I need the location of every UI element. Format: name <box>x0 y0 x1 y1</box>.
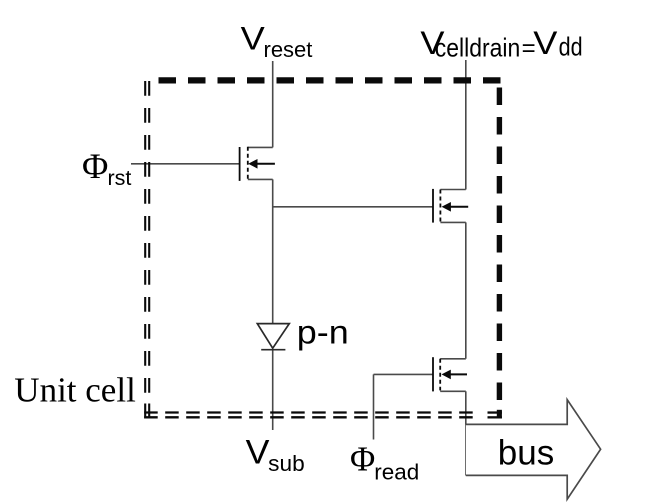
svg-text:sub: sub <box>268 451 305 476</box>
svg-text:celldrain: celldrain <box>435 33 521 63</box>
svg-text:bus: bus <box>498 434 554 473</box>
svg-text:V: V <box>533 26 557 62</box>
svg-text:rst: rst <box>108 166 132 190</box>
svg-text:Φ: Φ <box>82 146 108 186</box>
svg-text:Φ: Φ <box>350 441 375 479</box>
svg-text:reset: reset <box>264 37 313 62</box>
svg-text:p-n: p-n <box>297 314 349 351</box>
svg-text:Unit cell: Unit cell <box>14 371 136 410</box>
svg-text:V: V <box>246 433 271 471</box>
svg-text:V: V <box>241 21 265 57</box>
svg-text:read: read <box>374 460 419 485</box>
svg-text:dd: dd <box>559 32 583 62</box>
